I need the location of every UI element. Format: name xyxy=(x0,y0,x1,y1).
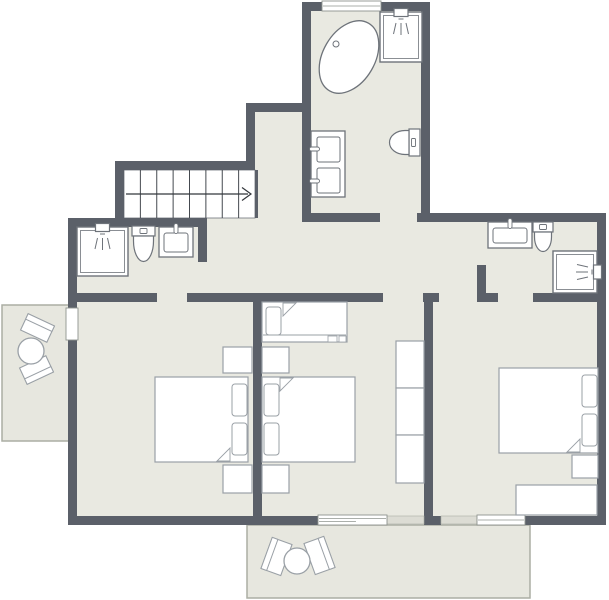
wardrobe-section-body xyxy=(396,341,424,388)
wall-north-right xyxy=(430,213,606,222)
nightstand-body xyxy=(223,347,252,373)
wardrobe-section[interactable] xyxy=(396,341,424,388)
faucet-icon xyxy=(310,147,320,151)
window-top xyxy=(322,1,381,11)
stairs-layer xyxy=(124,170,255,218)
pillow xyxy=(582,375,597,407)
wall-rightbath-bottom-b xyxy=(533,293,597,302)
pillow xyxy=(582,414,597,446)
sink-right-bathroom[interactable] xyxy=(488,219,532,249)
double-bed-left-bedroom[interactable] xyxy=(155,377,248,462)
bench-body xyxy=(516,485,597,515)
nightstand-body xyxy=(262,347,289,373)
nightstand[interactable] xyxy=(223,465,252,493)
balcony-door-left xyxy=(66,308,78,340)
faucet-icon xyxy=(174,224,178,234)
wall-step-vertical xyxy=(246,103,255,170)
wall-bedroom2-3 xyxy=(424,302,433,516)
floor-plan-canvas xyxy=(0,0,609,600)
wall-south-c xyxy=(525,516,606,525)
wall-stairs-top xyxy=(115,161,255,170)
pillow xyxy=(232,423,247,455)
sliding-door-bottom-frame xyxy=(318,515,387,525)
single-bed[interactable] xyxy=(262,302,347,342)
nightstand-body xyxy=(262,465,289,493)
shower-tray xyxy=(553,251,597,293)
floor-plan xyxy=(0,0,609,600)
pillow xyxy=(232,384,247,416)
double-bed-right-bedroom[interactable] xyxy=(499,368,598,453)
low-wall-a xyxy=(387,516,424,524)
wall-step-horizontal xyxy=(246,103,311,112)
wall-leftbath-right xyxy=(198,218,207,262)
pillow xyxy=(264,423,279,455)
wall-stairs-left xyxy=(115,161,124,227)
wardrobe-section-body xyxy=(396,435,424,483)
double-sink-vanity[interactable] xyxy=(310,131,346,197)
low-wall-b xyxy=(441,516,477,524)
round-table[interactable] xyxy=(18,338,44,364)
toilet-flush-button xyxy=(540,225,547,230)
balcony-door-left-frame xyxy=(66,308,78,340)
shower-head-mount xyxy=(594,265,602,279)
wall-topbath-bottom-b xyxy=(417,213,430,222)
sink-basin xyxy=(164,233,188,252)
sink-basin xyxy=(493,228,527,243)
floor-upper-hall xyxy=(250,107,306,222)
wall-topbath-top-a xyxy=(302,2,322,11)
table-top xyxy=(18,338,44,364)
sink-basin xyxy=(317,168,340,193)
shower-head-mount xyxy=(394,9,408,17)
wall-rightbath-bottom-a xyxy=(477,293,498,302)
shower-right-bathroom[interactable] xyxy=(553,251,602,293)
wall-bedroom1-2 xyxy=(253,302,262,516)
double-bed-middle-room[interactable] xyxy=(262,377,355,462)
nightstand[interactable] xyxy=(223,347,252,373)
toilet-flush-button xyxy=(140,229,147,234)
wardrobe-section[interactable] xyxy=(396,388,424,435)
wall-south-a xyxy=(68,516,318,525)
table-top xyxy=(284,548,310,574)
wardrobe-section[interactable] xyxy=(396,435,424,483)
toilet-flush-button xyxy=(412,139,416,147)
sink-left-bathroom[interactable] xyxy=(159,224,193,258)
faucet-icon xyxy=(310,179,320,183)
wall-south-b xyxy=(424,516,441,525)
wall-stair-divider xyxy=(255,170,258,218)
wall-mid-b xyxy=(187,293,383,302)
shower-top-bathroom[interactable] xyxy=(380,9,422,63)
pillow xyxy=(264,384,279,416)
wardrobe-section-body xyxy=(396,388,424,435)
nightstand[interactable] xyxy=(262,347,289,373)
bed-leg xyxy=(328,336,337,342)
nightstand-body xyxy=(572,455,598,478)
wall-west-lower xyxy=(68,340,77,525)
wall-topbath-bottom-a xyxy=(302,213,380,222)
shower-left-bathroom[interactable] xyxy=(77,224,128,277)
faucet-icon xyxy=(508,219,512,229)
wall-mid-a xyxy=(68,293,157,302)
bed-leg xyxy=(339,336,346,342)
sliding-door-bottom xyxy=(318,515,387,525)
round-table[interactable] xyxy=(284,548,310,574)
window-bottom xyxy=(477,515,525,525)
shower-head-mount xyxy=(96,224,110,232)
sink-basin xyxy=(317,137,340,162)
pillow xyxy=(266,307,281,335)
bench[interactable] xyxy=(516,485,597,515)
nightstand-body xyxy=(223,465,252,493)
wall-mid-c xyxy=(423,293,439,302)
staircase[interactable] xyxy=(124,170,255,218)
nightstand[interactable] xyxy=(572,455,598,478)
nightstand[interactable] xyxy=(262,465,289,493)
